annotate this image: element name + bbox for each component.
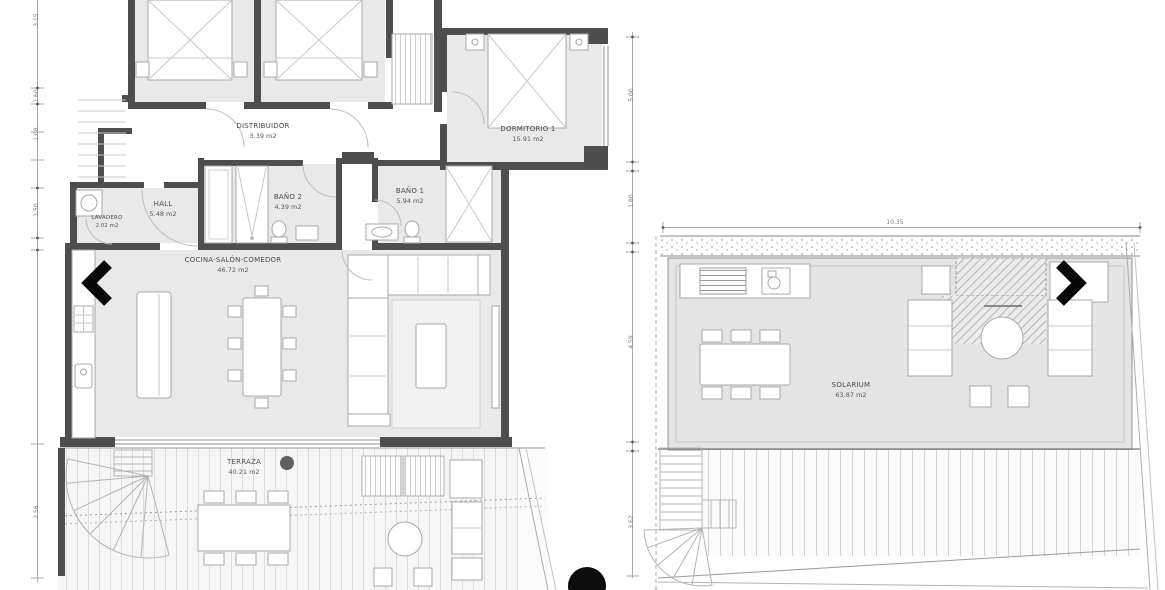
gravel-strip bbox=[660, 236, 1140, 256]
dim-label-left-3: 1.08 bbox=[33, 122, 41, 146]
room-label-hall: HALL 5.48 m2 bbox=[149, 199, 176, 219]
apartment-plan-graphics bbox=[58, 0, 608, 590]
plan-linework bbox=[0, 0, 1165, 590]
floorplan-viewer: DISTRIBUIDOR 3.39 m2 DORMITORIO 1 15.91 … bbox=[0, 0, 1165, 590]
roof-slats bbox=[658, 449, 1148, 588]
dim-label-solarium-width: 10.35 bbox=[886, 219, 903, 226]
dim-label-mid-1: 5.00 bbox=[628, 83, 636, 107]
carousel-next-button[interactable] bbox=[1054, 260, 1088, 306]
room-label-terraza: TERRAZA 40.21 m2 bbox=[227, 457, 261, 477]
room-label-bano-2: BAÑO 2 4.39 m2 bbox=[274, 192, 302, 212]
left-chevron-icon bbox=[80, 260, 114, 306]
room-label-solarium: SOLARIUM 63.87 m2 bbox=[832, 380, 871, 400]
dim-label-left-2: 1.60 bbox=[33, 84, 41, 108]
dim-label-mid-4: 3.62 bbox=[628, 510, 636, 534]
room-label-distribuidor: DISTRIBUIDOR 3.39 m2 bbox=[236, 121, 289, 141]
right-chevron-icon bbox=[1054, 260, 1088, 306]
room-label-lavadero: LAVADERO 2.02 m2 bbox=[91, 214, 122, 231]
room-label-bano-1: BAÑO 1 5.94 m2 bbox=[396, 186, 424, 206]
dim-label-mid-2: 1.80 bbox=[628, 189, 636, 213]
room-label-dormitorio-1: DORMITORIO 1 15.91 m2 bbox=[500, 124, 555, 144]
carousel-prev-button[interactable] bbox=[80, 260, 114, 306]
dim-label-mid-3: 4.59 bbox=[628, 330, 636, 354]
room-label-cocina-salon-comedor: COCINA-SALÓN-COMEDOR 46.72 m2 bbox=[185, 255, 282, 275]
dim-label-left-5: 2.56 bbox=[33, 500, 41, 524]
dim-label-left-4: 1.50 bbox=[33, 198, 41, 222]
dim-label-left-1: 3.15 bbox=[33, 8, 41, 32]
